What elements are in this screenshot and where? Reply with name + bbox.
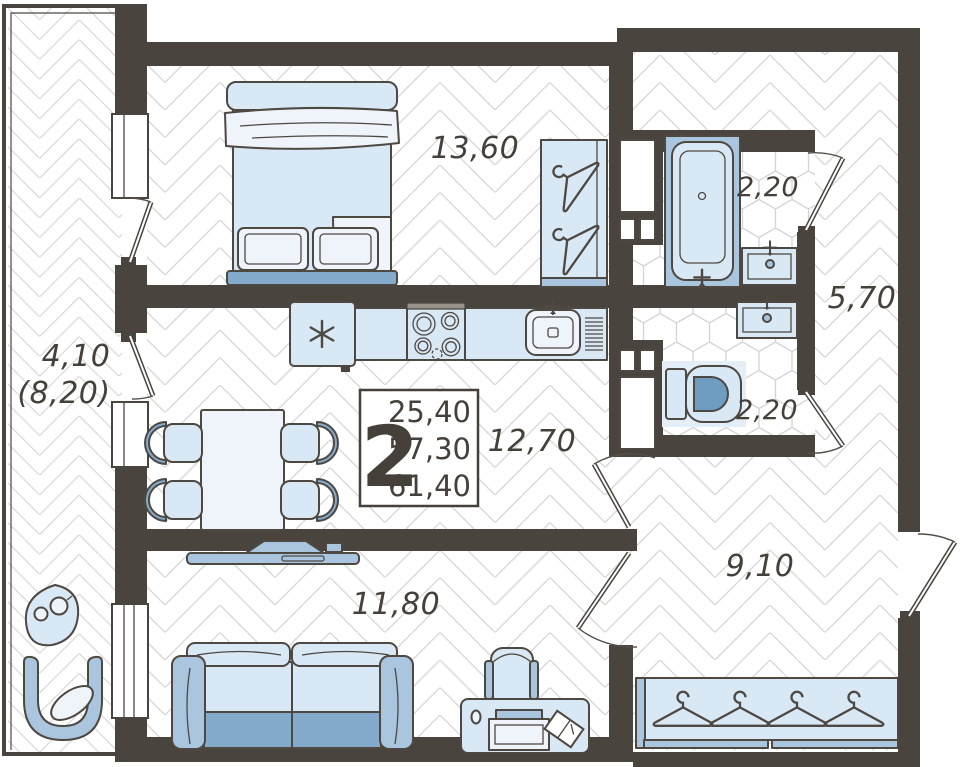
dining-table (201, 410, 284, 530)
wall-bathroom-right (797, 232, 815, 390)
bedroom-balcony-door (121, 198, 151, 269)
label-bathroom-area: 2,20 (737, 172, 799, 203)
desk-chair (485, 648, 538, 703)
living-window (112, 604, 148, 718)
laptop-icon (489, 710, 549, 750)
label-balcony-area: 4,10 (42, 339, 111, 374)
unit-info-badge: 2 25,40 57,30 61,40 (360, 390, 478, 506)
label-kitchen-area: 12,70 (488, 424, 576, 459)
bed (225, 82, 399, 285)
label-wc-area: 2,20 (736, 395, 798, 426)
fridge-icon (290, 302, 355, 372)
hall-wardrobe (636, 678, 898, 748)
label-bedroom-area: 13,60 (431, 131, 519, 166)
wall-bedroom-kitchen (147, 285, 815, 308)
wall-kitchen-living (147, 529, 637, 551)
floor-plan: 13,60 2,20 5,70 2,20 12,70 9,10 11,80 4,… (0, 0, 962, 767)
wall-right-lower (898, 618, 920, 767)
wc-sink-icon (737, 295, 797, 338)
wall-left-b (115, 265, 147, 333)
bathroom-sink-icon (742, 241, 797, 285)
entrance-door (900, 534, 955, 624)
stove-icon (407, 303, 465, 360)
label-living-area: 11,80 (352, 587, 440, 622)
label-hall-top-area: 5,70 (828, 281, 897, 316)
kitchen-window (112, 402, 148, 467)
wall-right-upper (898, 28, 920, 532)
wall-left-d (115, 718, 147, 762)
wall-living-hall (609, 645, 633, 762)
badge-area-3: 61,40 (388, 469, 471, 503)
wall-top-left (115, 42, 617, 66)
desk (461, 699, 589, 753)
label-hallway-area: 9,10 (726, 549, 795, 584)
sofa (172, 643, 413, 749)
bedroom-wardrobe (538, 140, 607, 287)
wall-bottom-right (633, 752, 920, 767)
wall-left-a (115, 4, 147, 113)
label-balcony-reduced-area: (8,20) (17, 376, 110, 411)
bathtub (665, 136, 740, 287)
bedroom-window (112, 114, 148, 198)
wall-top-right (617, 28, 920, 52)
badge-area-2: 57,30 (388, 432, 471, 466)
floor-plan-canvas: 13,60 2,20 5,70 2,20 12,70 9,10 11,80 4,… (0, 0, 962, 767)
toilet-icon (662, 361, 746, 427)
badge-area-1: 25,40 (388, 395, 471, 429)
wall-left-c (115, 467, 147, 603)
